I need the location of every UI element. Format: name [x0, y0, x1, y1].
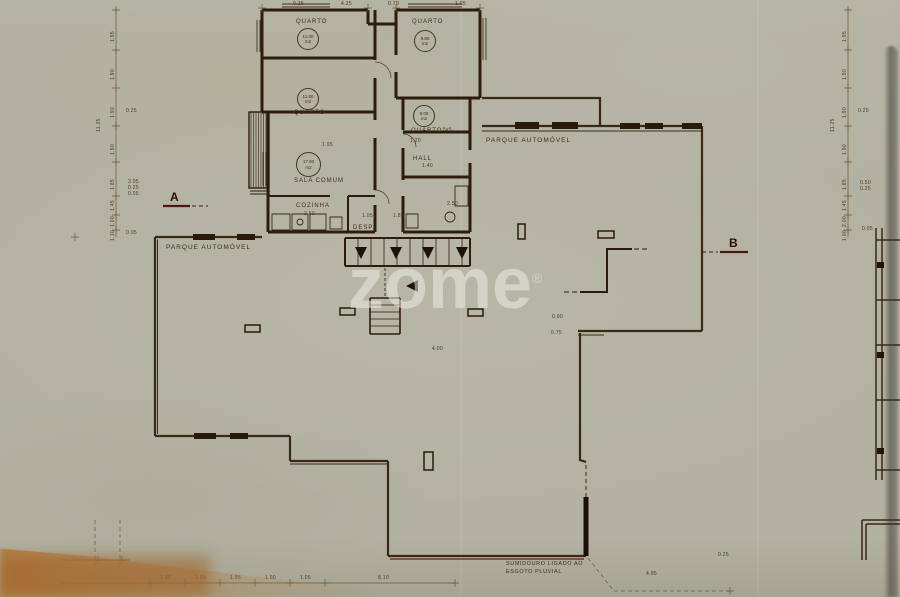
- dimension-text: 1.95: [111, 31, 116, 42]
- dimension-text: 0.05: [862, 227, 873, 232]
- windows: [257, 4, 486, 186]
- dimension-text: 0.25: [858, 109, 869, 114]
- section-marker-a: A: [170, 191, 179, 203]
- room-label-quarto-2: QUARTO: [294, 110, 325, 116]
- dimension-text: 1.90: [111, 144, 116, 155]
- dimension-text: 1.95: [843, 31, 848, 42]
- scanned-floor-plan: QUARTO 11.00 m2 11.50 m2 QUARTO QUARTO 9…: [0, 0, 900, 597]
- dimension-text: 0.70: [388, 2, 399, 7]
- room-area-circle: 11.50 m2: [297, 88, 319, 110]
- dimension-text: 1.90: [843, 107, 848, 118]
- room-label-quarto-3: QUARTO: [412, 19, 443, 25]
- hatched-porch: [249, 112, 270, 194]
- room-label-quarto-4: QUARTO: [411, 128, 442, 134]
- dimension-text: 1.85: [843, 179, 848, 190]
- dimension-text: 1.00: [111, 216, 116, 227]
- dimension-text: 1.85: [393, 214, 404, 219]
- dimension-text: 0.25: [293, 2, 304, 7]
- dimension-text: 1.40: [422, 164, 433, 169]
- dimension-overall-right: 11.25: [831, 118, 836, 132]
- dimension-text: 0.05: [128, 192, 139, 197]
- dimension-text: 5x5: [443, 128, 452, 133]
- room-area-circle: 9.00 m2: [413, 105, 435, 127]
- room-area-circle: 17.80 m2: [296, 152, 321, 177]
- room-area-unit: m2: [305, 99, 311, 104]
- room-label-kitchen: COZINHA: [296, 203, 330, 209]
- room-area-unit: m2: [305, 39, 311, 44]
- dimension-text: 1.00: [843, 230, 848, 241]
- watermark-registered-mark: ®: [532, 270, 542, 286]
- dimension-text: 2.00: [843, 216, 848, 227]
- watermark-text: zome: [348, 244, 532, 324]
- dimension-text: 1.05: [362, 214, 373, 219]
- label-parking-left: PARQUE AUTOMÓVEL: [166, 245, 251, 252]
- dimension-text: 1.20: [410, 139, 421, 144]
- dimension-text: 1.45: [843, 200, 848, 211]
- label-parking-right: PARQUE AUTOMÓVEL: [486, 138, 571, 145]
- room-area-circle: 11.00 m2: [297, 28, 319, 50]
- drain-note-line1: SUMIDOURO LIGADO AO: [506, 561, 583, 569]
- room-label-hall: HALL: [413, 156, 432, 162]
- dimension-overall-left: 11.25: [97, 118, 102, 132]
- dimension-text: 0.25: [126, 109, 137, 114]
- dimension-text: 1.90: [111, 107, 116, 118]
- section-marker-b: B: [729, 237, 738, 249]
- paper-crease: [757, 0, 759, 597]
- dimension-text: 0.25: [718, 553, 729, 558]
- dimension-text: 1.05: [455, 2, 466, 7]
- room-label-quarto-1: QUARTO: [296, 19, 327, 25]
- dimension-text: 0.25: [860, 187, 871, 192]
- room-area-unit: m2: [421, 116, 427, 121]
- dimension-text: 4.25: [341, 2, 352, 7]
- room-label-pantry: DESP.: [353, 225, 375, 231]
- dimension-text: 4.00: [432, 347, 443, 352]
- dimension-text: 8.10: [378, 576, 389, 581]
- dimension-text: 1.95: [322, 143, 333, 148]
- dimension-text: 1.85: [111, 179, 116, 190]
- dimension-text: 0.05: [126, 231, 137, 236]
- dimension-text: 1.90: [843, 144, 848, 155]
- scan-shadow-band: [884, 46, 898, 597]
- dimension-text: 1.05: [300, 576, 311, 581]
- dimension-text: 1.90: [111, 69, 116, 80]
- room-label-sala-comum: SALA COMUM: [294, 178, 344, 184]
- dimension-text: 1.90: [843, 69, 848, 80]
- dimension-text: 1.10: [111, 230, 116, 241]
- dimension-text: 4.95: [646, 572, 657, 577]
- drain-note-line2: ESGOTO PLUVIAL: [506, 569, 562, 577]
- paper-stain: [0, 556, 210, 597]
- watermark: zome®: [348, 242, 578, 320]
- apartment-walls: [262, 10, 480, 232]
- room-area-unit: m2: [422, 41, 428, 46]
- door-arcs: [375, 62, 416, 204]
- dimension-text: 1.45: [111, 200, 116, 211]
- room-area-circle: 9.80 m2: [414, 30, 436, 52]
- dimension-text: 2.50: [447, 202, 458, 207]
- dimension-text: 0.75: [551, 331, 562, 336]
- room-area-unit: m2: [305, 165, 311, 170]
- dimension-text: 2.50: [304, 212, 315, 217]
